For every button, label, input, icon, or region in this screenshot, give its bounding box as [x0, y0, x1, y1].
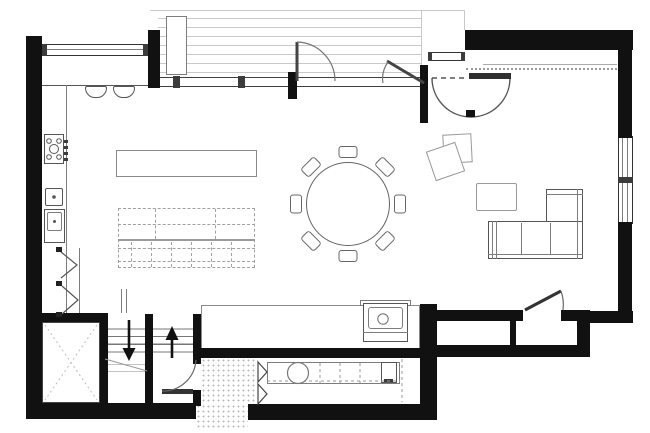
- wall-post-b: [288, 72, 297, 99]
- breakfast-bar-counter: [42, 56, 148, 86]
- wall-post-c: [420, 65, 428, 123]
- sofa-dash-div: [211, 242, 212, 267]
- oven-control-tick: [64, 140, 68, 143]
- sofa-front-line: [488, 254, 583, 255]
- stair-flight-down-continuation: [107, 358, 145, 378]
- oven-control-tick: [64, 146, 68, 149]
- sofa-dash-div: [171, 242, 172, 267]
- bifold-hinge-block: [56, 247, 62, 252]
- round-dining-table: [306, 162, 390, 246]
- overhead-dotted-line: [466, 68, 617, 70]
- sofa-dash-div: [231, 242, 232, 267]
- sofa-dash-div: [151, 242, 152, 267]
- oven-control-tick: [64, 158, 68, 161]
- entry-step-tile: [196, 404, 248, 428]
- sofa-dash-div: [215, 209, 216, 239]
- floor-plan: [0, 0, 650, 433]
- mudroom-door-leaf: [525, 291, 561, 310]
- sofa-dash-line: [118, 261, 255, 262]
- pantry-front-line: [79, 248, 80, 316]
- entry-window: [428, 52, 465, 61]
- handrail-line: [121, 289, 122, 313]
- sofa-chaise-edgeline: [577, 189, 578, 224]
- overhead-line: [483, 64, 617, 65]
- wall-laundry-right: [420, 304, 437, 420]
- wall-south-left: [28, 313, 108, 322]
- utility-sink-frontline: [363, 332, 408, 333]
- deck: [158, 10, 421, 77]
- top-left-window: [42, 44, 148, 56]
- stair-door-leaf: [162, 389, 193, 394]
- sofa-edge-line: [577, 221, 578, 259]
- deck-planter: [166, 16, 187, 75]
- vestibule-bifold-leaf: [258, 362, 267, 382]
- wall-stair-right-bottom: [193, 390, 201, 406]
- bar-stool: [113, 86, 135, 98]
- wall-corridor-divider: [510, 310, 516, 345]
- vestibule-bifold-leaf: [258, 384, 267, 404]
- sofa-dash-div: [131, 242, 132, 267]
- entry-door-leaf: [469, 73, 511, 79]
- handrail-line: [126, 289, 127, 313]
- glass-mullion: [238, 76, 245, 88]
- wall-small-room-right: [577, 310, 590, 357]
- sofa-mid-line: [118, 239, 255, 241]
- right-window-mullion: [618, 177, 633, 183]
- sofa-dash-div: [155, 209, 156, 239]
- glass-mullion: [173, 76, 180, 88]
- wall-top-right: [465, 30, 633, 50]
- sofa-dash-line: [118, 248, 255, 249]
- kitchen-counter-edge: [66, 85, 67, 316]
- mudroom-door-arc: [561, 291, 563, 310]
- dining-chair: [339, 146, 358, 158]
- entry-door-swing-arc: [432, 78, 510, 117]
- wall-right-lower: [618, 222, 632, 323]
- utility-sink-basin: [368, 307, 403, 329]
- wall-bottom-mid: [248, 404, 437, 420]
- sofa-dash-line: [118, 224, 255, 225]
- bifold-door-chevron: [62, 286, 78, 314]
- sofa-seat-divider: [550, 223, 551, 254]
- window-cap: [428, 52, 432, 61]
- dining-chair: [290, 195, 302, 214]
- wall-elevator-right: [100, 313, 108, 405]
- stair-door-swing-arc: [162, 360, 196, 391]
- bifold-door-chevron: [61, 252, 77, 278]
- dining-chair: [394, 195, 406, 214]
- porch-corner-edge: [464, 10, 465, 30]
- dashed-modular-sofa: [118, 208, 255, 268]
- window-cap: [42, 44, 47, 56]
- window-cap: [461, 52, 465, 61]
- wall-post-a: [148, 30, 160, 88]
- wall-laundry-top: [193, 348, 420, 358]
- wall-left: [26, 36, 42, 416]
- deck-top-edge: [150, 10, 465, 11]
- stair-flight-down: [107, 322, 145, 358]
- stair-flight-up: [153, 322, 193, 358]
- coffee-table: [476, 183, 517, 211]
- range-cooktop: [44, 134, 64, 164]
- top-left-window-glassline: [42, 49, 148, 50]
- wall-stair-center: [145, 314, 153, 406]
- oven-control-tick: [64, 152, 68, 155]
- entry-door-pivot-tick: [466, 110, 475, 117]
- sofa-seat-divider: [521, 223, 522, 254]
- oven-unit-inner: [47, 212, 62, 231]
- sofa-dash-div: [191, 242, 192, 267]
- kitchen-sink: [45, 188, 63, 206]
- kitchen-island: [116, 150, 257, 177]
- bar-stool: [85, 86, 107, 98]
- bifold-hinge-block: [56, 281, 62, 286]
- appliance-vent: [384, 379, 393, 382]
- vestibule-tile: [201, 358, 258, 404]
- dining-chair: [339, 250, 358, 262]
- elevator-shaft: [42, 322, 100, 403]
- wall-corridor-bottom: [420, 345, 590, 357]
- wall-bottom-left: [26, 403, 196, 419]
